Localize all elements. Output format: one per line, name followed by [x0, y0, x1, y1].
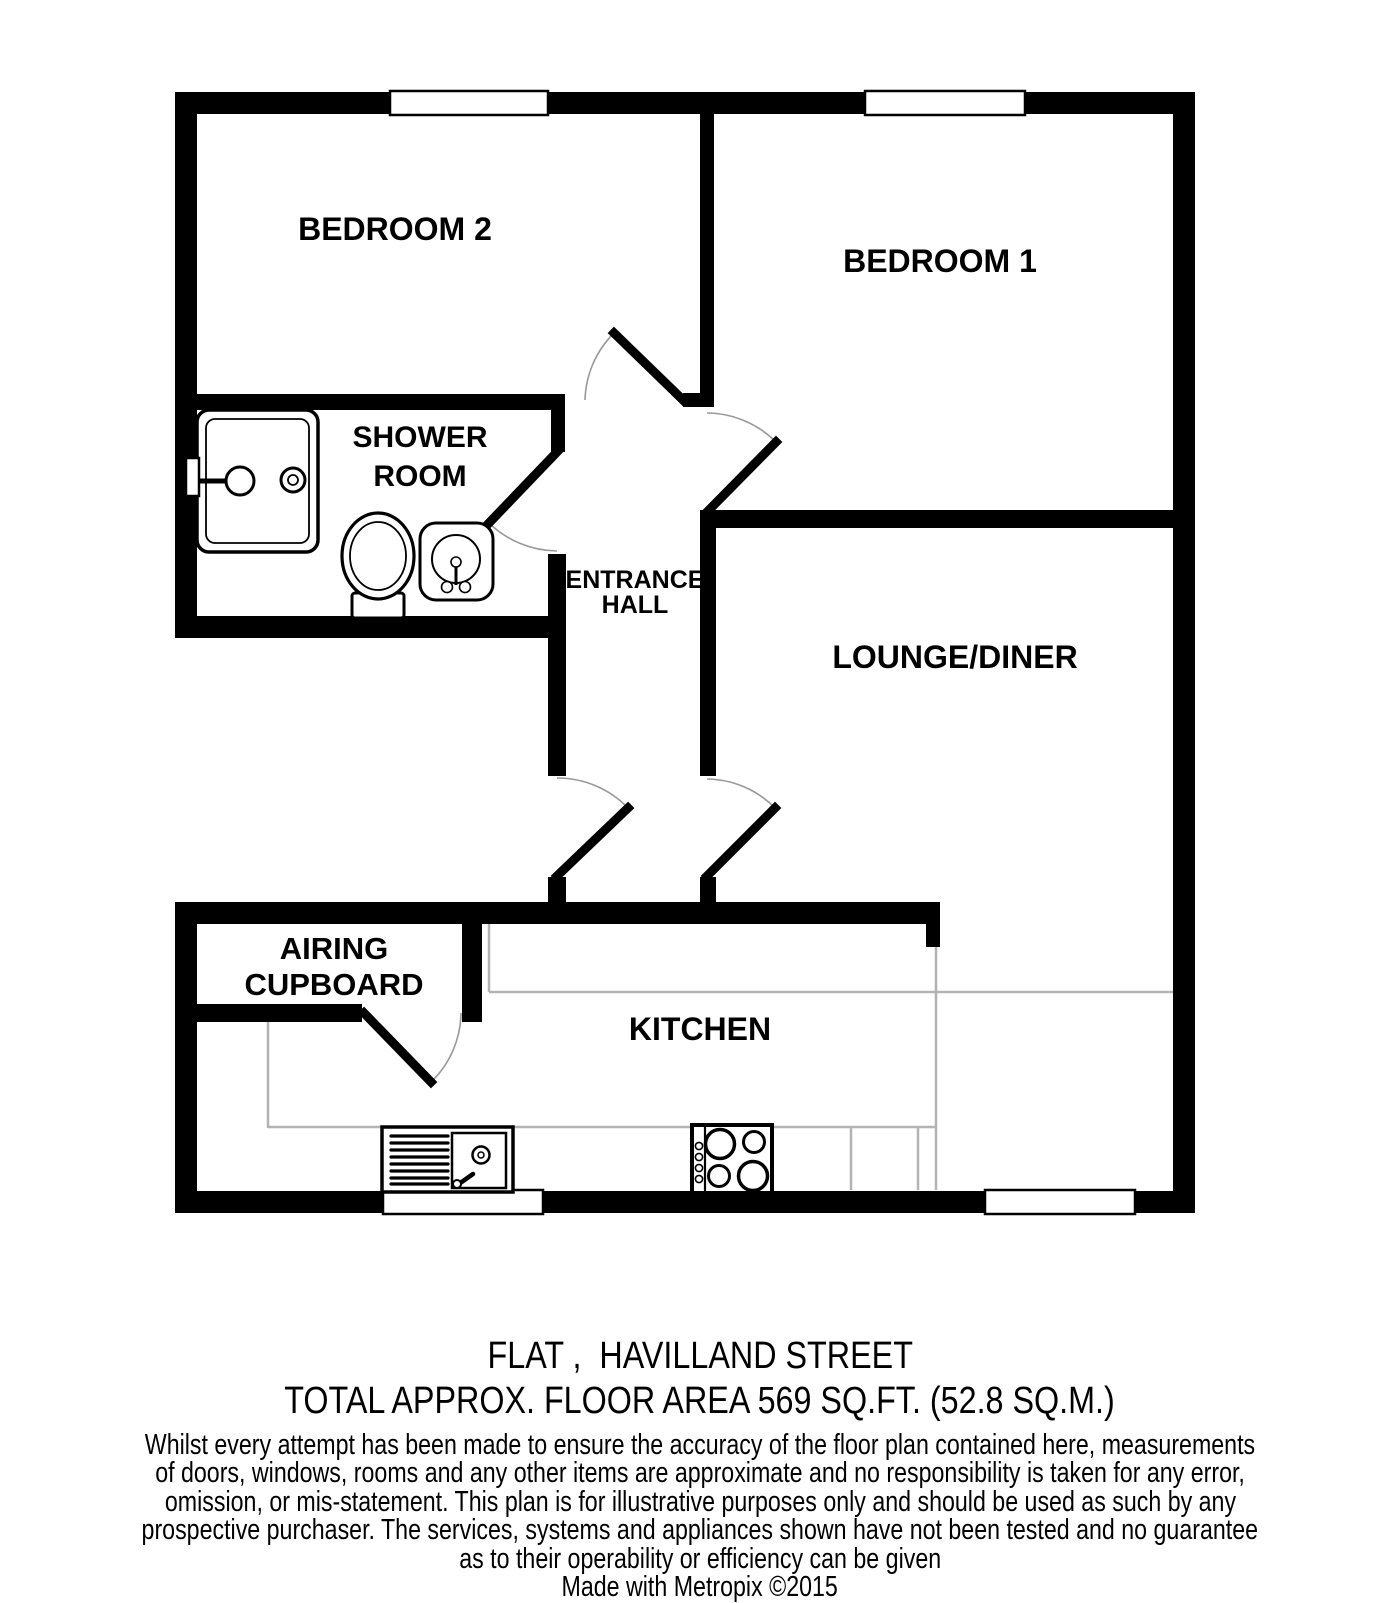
wall-segment	[197, 1004, 362, 1022]
wall-segment	[197, 902, 940, 924]
room-label-lounge: LOUNGE/DINER	[832, 639, 1077, 675]
door-leaf	[557, 808, 628, 876]
door-leaf	[614, 333, 683, 400]
door-airing-cupboard	[364, 1013, 461, 1082]
window	[985, 1190, 1135, 1214]
room-label-hall-line2: HALL	[602, 591, 669, 619]
wall-segment	[462, 924, 482, 1022]
wall-segment	[926, 924, 940, 947]
wall-segment	[175, 92, 1195, 114]
room-label-airing-line2: CUPBOARD	[244, 967, 423, 1002]
door-leaf	[707, 808, 775, 876]
wall-segment	[700, 510, 716, 776]
door-lounge	[707, 779, 775, 876]
door-arc	[585, 333, 614, 400]
door-bedroom1	[707, 413, 776, 512]
toilet-icon	[342, 513, 414, 618]
wall-segment	[700, 114, 714, 407]
door-kitchen	[557, 778, 628, 876]
wall-segment	[175, 902, 197, 1213]
room-label-hall-line1: ENTRANCE	[566, 566, 705, 594]
wall-segment	[1173, 92, 1195, 1213]
wall-segment	[700, 510, 1173, 528]
window	[390, 91, 548, 115]
door-arc	[431, 1013, 461, 1082]
door-arc	[707, 779, 775, 808]
wall-segment	[551, 410, 565, 452]
wash-basin-icon	[420, 523, 493, 600]
wall-segment	[548, 554, 566, 776]
room-label-airing-line1: AIRING	[280, 931, 389, 966]
shower-tray-icon	[186, 410, 318, 552]
door-arc	[557, 778, 628, 808]
door-shower-room	[489, 452, 557, 551]
floorplan-page: { "plan_type": "flat-floorplan", "rooms"…	[0, 0, 1400, 1600]
kitchen-sink-icon	[382, 1127, 513, 1192]
wall-segment	[197, 394, 565, 410]
door-leaf	[364, 1013, 431, 1082]
room-label-shower-line2: ROOM	[373, 460, 466, 493]
door-arc	[707, 413, 776, 442]
room-label-shower-line1: SHOWER	[353, 421, 488, 454]
room-label-bedroom1: BEDROOM 1	[843, 243, 1037, 279]
room-label-kitchen: KITCHEN	[629, 1011, 771, 1047]
door-leaf	[489, 452, 557, 523]
door-leaf	[707, 442, 776, 512]
floor-plan-svg: BEDROOM 2 BEDROOM 1 SHOWER ROOM ENTRANCE…	[0, 0, 1400, 1600]
door-bedroom2	[585, 333, 683, 400]
window	[865, 91, 1025, 115]
hob-icon	[692, 1125, 772, 1193]
room-label-bedroom2: BEDROOM 2	[298, 211, 492, 247]
wall-segment	[175, 92, 197, 638]
door-arc	[489, 523, 557, 551]
